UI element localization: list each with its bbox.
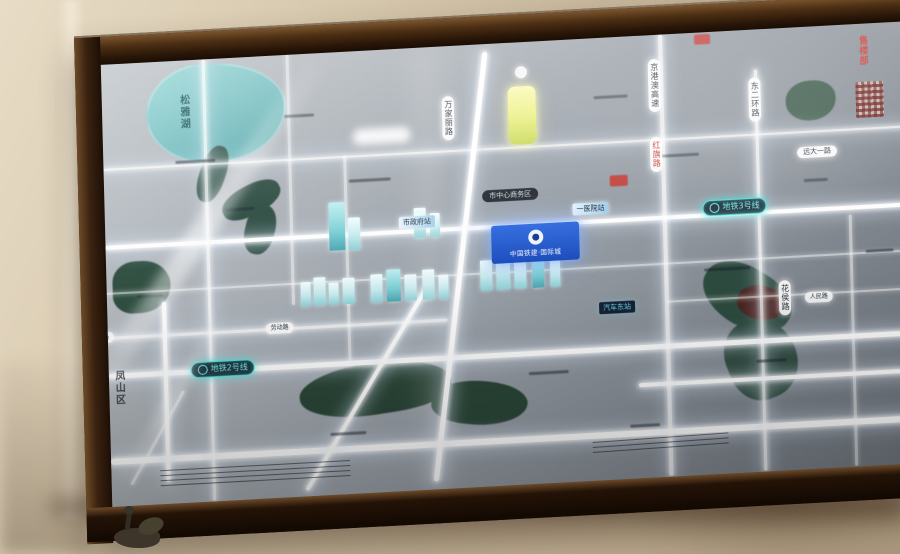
district-name-label: 凤山区 bbox=[111, 370, 127, 407]
road-segment bbox=[162, 302, 171, 482]
building-icon bbox=[342, 278, 355, 305]
lake-name-label: 松雅湖 bbox=[176, 94, 192, 131]
metro-line-2-badge: 地铁2号线 bbox=[191, 359, 255, 378]
road-segment bbox=[343, 156, 351, 366]
road-name-pill: 远大一路 bbox=[797, 145, 837, 158]
road-name-pill-vertical: 万家丽路 bbox=[442, 96, 455, 141]
yellow-landmark bbox=[507, 85, 536, 145]
road-name-oval: 劳动路 bbox=[266, 322, 294, 335]
building-icon bbox=[550, 260, 561, 287]
small-map-text bbox=[630, 423, 660, 428]
illuminated-map-display: 松雅湖 凤山区 市中心商务区 市政府站 一医院站 汽车东站 地铁3号线 地铁2号… bbox=[74, 0, 900, 542]
road-name-oval: 人民路 bbox=[805, 291, 833, 304]
small-map-text bbox=[330, 431, 366, 436]
park-top-right bbox=[785, 79, 836, 122]
building-icon bbox=[422, 269, 435, 300]
building-icon bbox=[313, 277, 326, 306]
road-segment-diagonal bbox=[130, 390, 185, 485]
metro-line-2-label: 地铁2号线 bbox=[211, 363, 248, 373]
wall-shadow-left bbox=[0, 360, 90, 554]
map-glass-panel: 松雅湖 凤山区 市中心商务区 市政府站 一医院站 汽车东站 地铁3号线 地铁2号… bbox=[101, 18, 900, 507]
road-segment bbox=[286, 55, 296, 305]
small-map-text bbox=[659, 153, 699, 158]
road-name-pill-vertical: 东二环路 bbox=[748, 77, 761, 122]
building-icon bbox=[348, 217, 361, 250]
railway-line bbox=[593, 442, 729, 453]
road-name-pill-vertical: 京港澳高速 bbox=[648, 59, 661, 113]
landmark-dot-icon bbox=[515, 66, 527, 79]
small-map-text bbox=[804, 178, 828, 182]
red-tag bbox=[610, 175, 628, 187]
red-vertical-badge: 售楼部 bbox=[856, 35, 870, 66]
project-location-badge: 中国铁建·国际城 bbox=[491, 221, 580, 264]
building-icon bbox=[438, 274, 449, 299]
building-icon bbox=[300, 282, 311, 307]
building-icon bbox=[328, 282, 339, 305]
road-name-pill-vertical-red: 红旗路 bbox=[650, 137, 663, 173]
road-name-pill-vertical: 花侯路 bbox=[778, 280, 791, 316]
plant-silhouette bbox=[86, 510, 176, 554]
building-icon bbox=[404, 274, 417, 301]
metro-station-pill-dark: 汽车东站 bbox=[599, 300, 635, 314]
qr-code-block bbox=[855, 81, 884, 119]
railway-line bbox=[161, 475, 351, 486]
building-icon bbox=[328, 202, 345, 251]
red-tag bbox=[694, 34, 710, 45]
metro-line-3-label: 地铁3号线 bbox=[722, 202, 759, 212]
project-name: 中国铁建·国际城 bbox=[510, 245, 562, 258]
building-icon bbox=[370, 274, 383, 303]
metro-station-pill: 一医院站 bbox=[572, 202, 608, 216]
poi-dark-pill: 市中心商务区 bbox=[482, 187, 538, 202]
project-logo-icon bbox=[528, 229, 543, 245]
small-map-text bbox=[349, 177, 391, 182]
metro-station-pill: 市政府站 bbox=[399, 215, 435, 229]
small-map-text bbox=[529, 370, 569, 375]
metro-icon bbox=[709, 203, 719, 214]
glare-soft bbox=[530, 18, 900, 262]
reflection-blob bbox=[352, 126, 410, 145]
building-icon bbox=[480, 260, 493, 291]
small-map-text bbox=[594, 94, 628, 99]
metro-icon bbox=[198, 365, 208, 376]
building-icon bbox=[386, 269, 401, 302]
photo-of-map-display: 松雅湖 凤山区 市中心商务区 市政府站 一医院站 汽车东站 地铁3号线 地铁2号… bbox=[0, 0, 900, 554]
small-map-text bbox=[284, 113, 314, 118]
building-icon bbox=[514, 260, 527, 289]
